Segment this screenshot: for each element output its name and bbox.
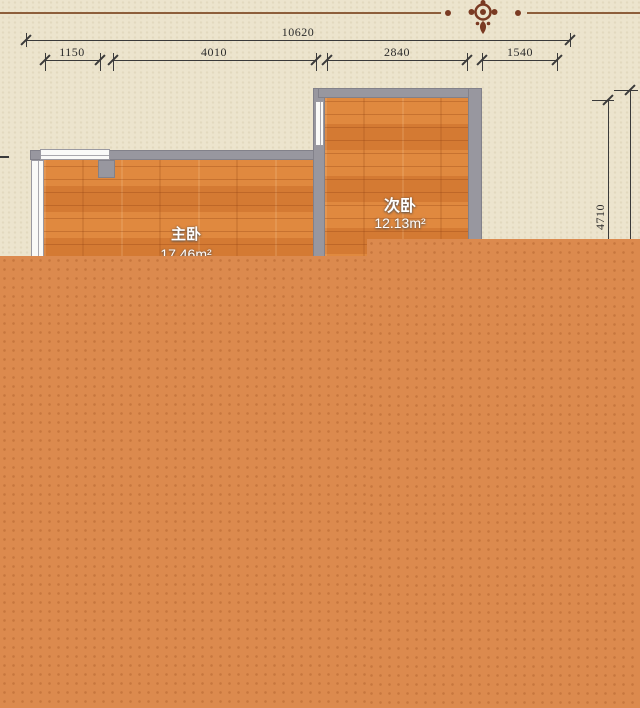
dimension-ext (113, 53, 114, 71)
master-bedroom-name: 主卧 (146, 223, 226, 244)
deco-border-left (0, 12, 441, 14)
dimension-label-total: 10620 (268, 26, 328, 38)
dimension-line-total (26, 40, 570, 41)
window-pane-line (320, 102, 321, 145)
dimension-line-seg4 (482, 60, 557, 61)
dimension-ext (482, 53, 483, 71)
dimension-line-right-inner (608, 100, 609, 240)
dimension-line-seg1 (45, 60, 100, 61)
dimension-label-right-height: 4710 (594, 187, 608, 247)
dimension-label-seg4: 1540 (490, 46, 550, 58)
deco-border-right (527, 12, 640, 14)
second-bedroom-floor (325, 98, 468, 258)
dimension-label-seg3: 2840 (367, 46, 427, 58)
second-bedroom-name: 次卧 (357, 192, 443, 216)
dimension-line-seg3 (327, 60, 467, 61)
second-bedroom-right-wall (468, 88, 482, 250)
dimension-ext-left-edge (0, 156, 9, 158)
dimension-line-right-outer (630, 90, 631, 240)
second-bedroom-top-wall (318, 88, 482, 98)
dimension-ext (557, 53, 558, 71)
wall-pier (98, 160, 115, 178)
orange-cover-block-left (0, 256, 367, 708)
window-pane-line (41, 155, 109, 156)
second-bedroom-left-window (315, 101, 324, 146)
window-pane-line (38, 161, 39, 257)
dimension-ext (592, 100, 614, 101)
master-bedroom-left-window (31, 160, 44, 258)
dimension-label-seg2: 4010 (184, 46, 244, 58)
ornament-icon (438, 0, 528, 36)
dimension-ext (467, 53, 468, 71)
orange-cover-block-right (367, 239, 640, 708)
dimension-line-seg2 (113, 60, 316, 61)
dimension-ext (316, 53, 317, 71)
master-bedroom-top-window (40, 149, 110, 160)
dimension-ext (327, 53, 328, 71)
floor-plan-canvas: 10620 1150 4010 2840 1540 4710 (0, 0, 640, 708)
dimension-label-seg1: 1150 (42, 46, 102, 58)
second-bedroom-area: 12.13m² (357, 215, 443, 231)
